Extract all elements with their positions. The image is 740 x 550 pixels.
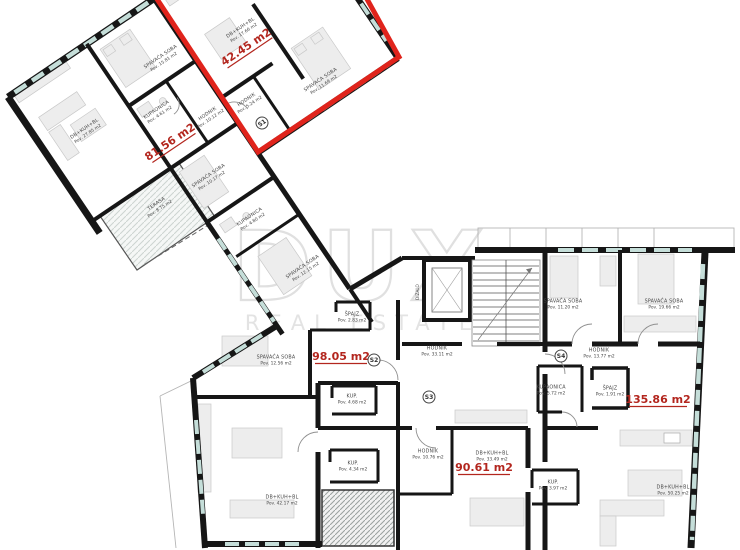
room-label: HODNIK Pov. 10.12 m2 [193, 103, 226, 131]
unit-area-text: 90.61 m2 [455, 461, 513, 474]
room-label: SPAVAĆA SOBA Pov. 11.20 m2 [544, 298, 583, 311]
badge-label: S3 [425, 394, 434, 401]
balcony-outline [160, 396, 176, 548]
room-label: KUP. Pov. 4.68 m2 [338, 394, 367, 406]
badge-label: S4 [557, 353, 566, 360]
wardrobe [624, 316, 696, 332]
room-area: Pov. 33.11 m2 [421, 352, 452, 358]
room-name: ŠPAJZ [603, 385, 618, 392]
floor-plan: DUX REAL ESTATE [0, 0, 740, 550]
unit-area-label: 98.05 m2 [312, 350, 370, 364]
bed [638, 254, 674, 304]
room-name: KUP. [548, 480, 559, 486]
room-area: Pov. 2.83 m2 [338, 318, 367, 324]
balcony-outline [160, 380, 193, 396]
room-area: Pov. 5.72 m2 [537, 391, 566, 397]
unit-badge: S4 [555, 350, 567, 362]
room-area: Pov. 19.66 m2 [648, 305, 679, 311]
door-arc [416, 428, 436, 448]
table [232, 428, 282, 458]
sofa [470, 498, 524, 526]
door-arc [572, 324, 592, 344]
room-area: Pov. 10.76 m2 [412, 455, 443, 461]
room-area: Pov. 4.68 m2 [338, 400, 367, 406]
room-name: SPAVAĆA SOBA [645, 298, 684, 305]
elevator-label: DIZALO [415, 283, 420, 299]
room-name: HODNIK [427, 346, 448, 352]
room-label: KUP. Pov. 4.34 m2 [339, 461, 368, 473]
shaft-area [322, 490, 394, 546]
sink [664, 433, 680, 443]
room-label: SPAVAĆA SOBA Pov. 19.66 m2 [645, 298, 684, 311]
room-name: DB+KUH+BL [476, 451, 509, 457]
kitchen-counter [15, 61, 71, 102]
room-name: ŠPAJZ [345, 311, 360, 318]
sofa [600, 500, 664, 516]
kitchen-counter [455, 410, 527, 423]
room-area: Pov. 13.77 m2 [583, 354, 614, 360]
room-area: Pov. 50.25 m2 [657, 491, 688, 497]
room-area: Pov. 1.91 m2 [596, 392, 625, 398]
kitchen-counter [620, 430, 692, 446]
room-label: SPAVAĆA SOBA Pov. 12.56 m2 [257, 354, 296, 367]
room-name: HODNIK [418, 449, 439, 455]
room-area: Pov. 3.97 m2 [539, 486, 568, 492]
room-label: KUP. Pov. 3.97 m2 [539, 480, 568, 492]
unit-area-text: 98.05 m2 [312, 350, 370, 363]
unit-area-label: 135.86 m2 [625, 393, 690, 407]
room-label: ŠPAJZ Pov. 1.91 m2 [596, 385, 625, 398]
room-name: DB+KUH+BL [657, 485, 690, 491]
sofa [600, 516, 616, 546]
room-name: KUP. [347, 394, 358, 400]
room-name: DB+KUH+BL [266, 495, 299, 501]
door-arc [378, 360, 398, 380]
room-label: KUPAONICA Pov. 5.72 m2 [536, 385, 566, 397]
room-area: Pov. 42.17 m2 [266, 501, 297, 507]
unit-badge: S1 [254, 115, 271, 132]
room-label: HODNIK Pov. 13.77 m2 [583, 348, 614, 360]
room-area: Pov. 4.34 m2 [339, 467, 368, 473]
room-name: SPAVAĆA SOBA [544, 298, 583, 305]
unit-area-text: 135.86 m2 [625, 393, 690, 406]
desk [600, 256, 616, 286]
room-label: HODNIK Pov. 10.76 m2 [412, 449, 443, 461]
room-area: Pov. 11.20 m2 [547, 305, 578, 311]
unit-area-label: 90.61 m2 [455, 461, 513, 475]
unit-badge: S2 [368, 354, 380, 366]
room-area: Pov. 12.56 m2 [260, 361, 291, 367]
room-label: HODNIK Pov. 33.11 m2 [421, 346, 452, 358]
room-name: KUP. [348, 461, 359, 467]
floor-plan-page: DUX REAL ESTATE [0, 0, 740, 550]
room-name: KUPAONICA [536, 385, 566, 391]
kitchen-counter [165, 0, 213, 6]
door-arc [298, 432, 318, 452]
room-name: SPAVAĆA SOBA [257, 354, 296, 361]
balcony-outline [478, 228, 734, 248]
bed [550, 256, 578, 298]
unit-badge: S3 [423, 391, 435, 403]
badge-label: S2 [370, 357, 379, 364]
room-name: HODNIK [589, 348, 610, 354]
door-arc [562, 412, 577, 427]
room-label: HODNIK Pov. 5.24 m2 [233, 89, 263, 115]
